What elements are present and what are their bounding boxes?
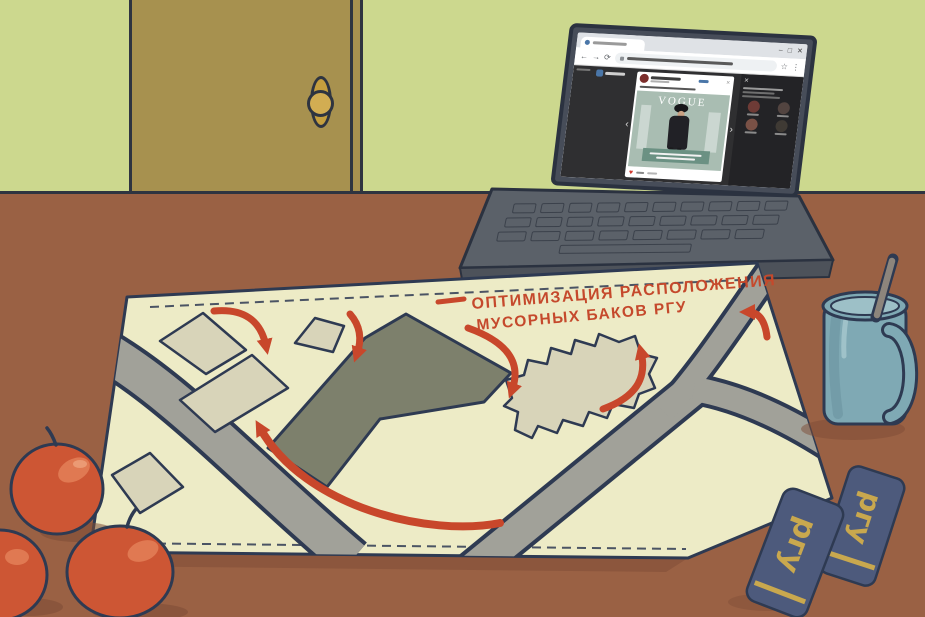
laptop-key xyxy=(764,201,789,211)
avatar[interactable] xyxy=(639,74,649,83)
laptop-key xyxy=(598,230,629,240)
headline-placeholder xyxy=(656,156,695,160)
tab-favicon-icon xyxy=(585,40,591,45)
post-card: ✕ VOGUE xyxy=(624,71,734,182)
window-close-button[interactable]: ✕ xyxy=(796,45,804,59)
laptop-spacebar-key xyxy=(558,244,692,254)
laptop-screen: – □ ✕ ← → ⟳ ☆ ⋮ ‹ xyxy=(550,23,818,198)
related-item[interactable] xyxy=(769,102,797,118)
laptop-key xyxy=(752,215,780,225)
related-thumbnails xyxy=(738,100,798,136)
laptop-key xyxy=(736,201,761,211)
related-avatar xyxy=(747,100,760,113)
bookmark-star-icon[interactable]: ☆ xyxy=(780,63,788,71)
back-icon[interactable]: ← xyxy=(580,52,589,60)
laptop-key xyxy=(540,203,565,213)
laptop-key xyxy=(530,231,561,241)
follow-link-placeholder[interactable] xyxy=(698,80,708,84)
related-item[interactable] xyxy=(767,119,795,135)
laptop-key xyxy=(734,229,765,239)
like-count-placeholder xyxy=(636,172,644,174)
window-minimize-button[interactable]: – xyxy=(778,44,784,58)
browser-window: – □ ✕ ← → ⟳ ☆ ⋮ ‹ xyxy=(560,32,807,188)
laptop-key xyxy=(652,202,677,212)
laptop-key xyxy=(700,229,731,239)
related-item[interactable] xyxy=(740,100,768,116)
photo-viewer: ‹ ✕ VOGUE xyxy=(560,65,803,188)
laptop-key xyxy=(564,231,595,241)
laptop-key xyxy=(568,203,593,213)
like-icon[interactable]: ♥ xyxy=(628,169,633,176)
url-text-placeholder xyxy=(627,57,734,66)
laptop-key xyxy=(504,217,532,227)
laptop-key xyxy=(597,216,625,226)
site-logo xyxy=(595,69,625,77)
table-surface xyxy=(0,194,925,617)
related-label-placeholder xyxy=(776,115,788,118)
laptop-key xyxy=(632,230,663,240)
post-author xyxy=(650,76,681,84)
viewer-backdrop xyxy=(560,65,630,179)
browser-menu-icon[interactable]: ⋮ xyxy=(791,63,800,71)
laptop-key xyxy=(596,202,621,212)
laptop-keyboard xyxy=(497,200,803,258)
photo-counter-placeholder xyxy=(576,68,590,71)
cover-headline-banner xyxy=(641,148,709,164)
comment-count-placeholder xyxy=(647,172,657,175)
panel-close-icon[interactable]: ✕ xyxy=(744,77,801,87)
tab-title-placeholder xyxy=(593,41,627,46)
laptop-key xyxy=(680,201,705,211)
post-close-icon[interactable]: ✕ xyxy=(726,80,731,86)
laptop-key xyxy=(624,202,649,212)
related-label-placeholder xyxy=(747,113,759,116)
vk-logo-icon xyxy=(595,69,603,76)
laptop-key xyxy=(708,201,733,211)
reload-icon[interactable]: ⟳ xyxy=(604,53,612,61)
laptop-key xyxy=(628,216,656,226)
related-avatar xyxy=(777,102,790,115)
post-time-placeholder xyxy=(650,80,669,83)
laptop-key xyxy=(659,216,687,226)
door-frame xyxy=(350,0,363,194)
laptop-key xyxy=(721,215,749,225)
related-avatar xyxy=(775,120,788,133)
laptop-key xyxy=(666,230,697,240)
window-maximize-button[interactable]: □ xyxy=(787,44,793,58)
magazine-cover-photo[interactable]: VOGUE xyxy=(628,91,730,171)
panel-text-placeholder xyxy=(742,95,780,99)
related-label-placeholder xyxy=(774,133,786,136)
related-item[interactable] xyxy=(738,118,766,134)
laptop-key xyxy=(690,215,718,225)
logo-text-placeholder xyxy=(604,72,624,76)
caption-text-placeholder xyxy=(639,86,695,91)
related-label-placeholder xyxy=(745,131,757,134)
cover-background-shape xyxy=(636,105,651,149)
laptop-key xyxy=(512,203,537,213)
related-avatar xyxy=(745,118,758,131)
laptop-key xyxy=(496,231,527,241)
model-coat xyxy=(667,116,690,150)
laptop-key xyxy=(535,217,563,227)
forward-icon[interactable]: → xyxy=(592,53,601,61)
related-panel: ✕ xyxy=(728,74,804,189)
panel-text-placeholder xyxy=(742,91,774,95)
laptop-key xyxy=(566,217,594,227)
site-security-icon xyxy=(620,56,624,60)
cover-background-shape xyxy=(704,112,721,152)
door-knob xyxy=(307,90,334,117)
